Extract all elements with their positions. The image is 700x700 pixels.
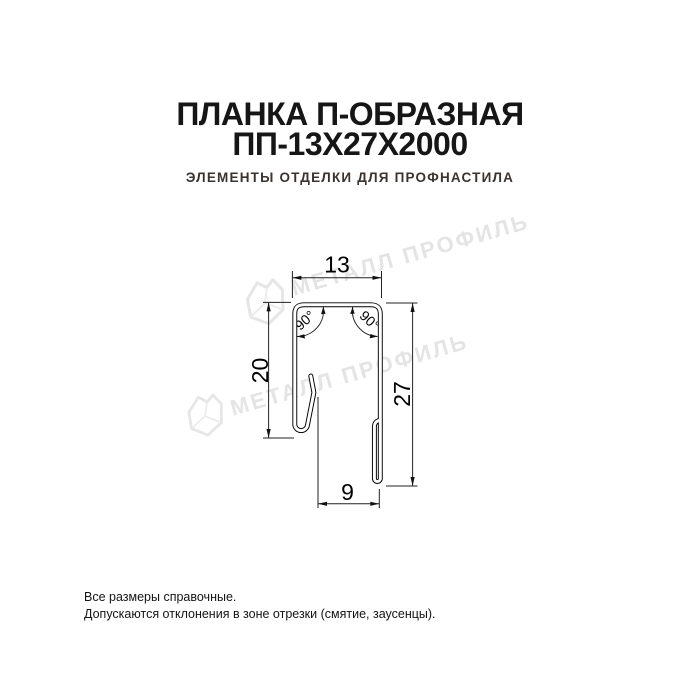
- dim-label-top-width: 13: [324, 252, 350, 278]
- footnotes: Все размеры справочные. Допускаются откл…: [84, 589, 436, 622]
- dimension-left-height: 20: [247, 302, 294, 438]
- footnote-line1: Все размеры справочные.: [84, 589, 436, 606]
- dim-label-left-height: 20: [247, 358, 273, 384]
- footnote-line2: Допускаются отклонения в зоне отрезки (с…: [84, 606, 436, 623]
- dimension-right-height: 27: [386, 303, 418, 486]
- dim-label-right-height: 27: [389, 381, 415, 407]
- product-card: ПЛАНКА П-ОБРАЗНАЯ ПП-13Х27Х2000 ЭЛЕМЕНТЫ…: [0, 0, 700, 700]
- dimension-bottom-width: 9: [318, 397, 379, 508]
- dim-label-bottom-width: 9: [341, 479, 354, 505]
- profile-outline: [295, 305, 381, 482]
- dimension-top-width: 13: [292, 252, 381, 299]
